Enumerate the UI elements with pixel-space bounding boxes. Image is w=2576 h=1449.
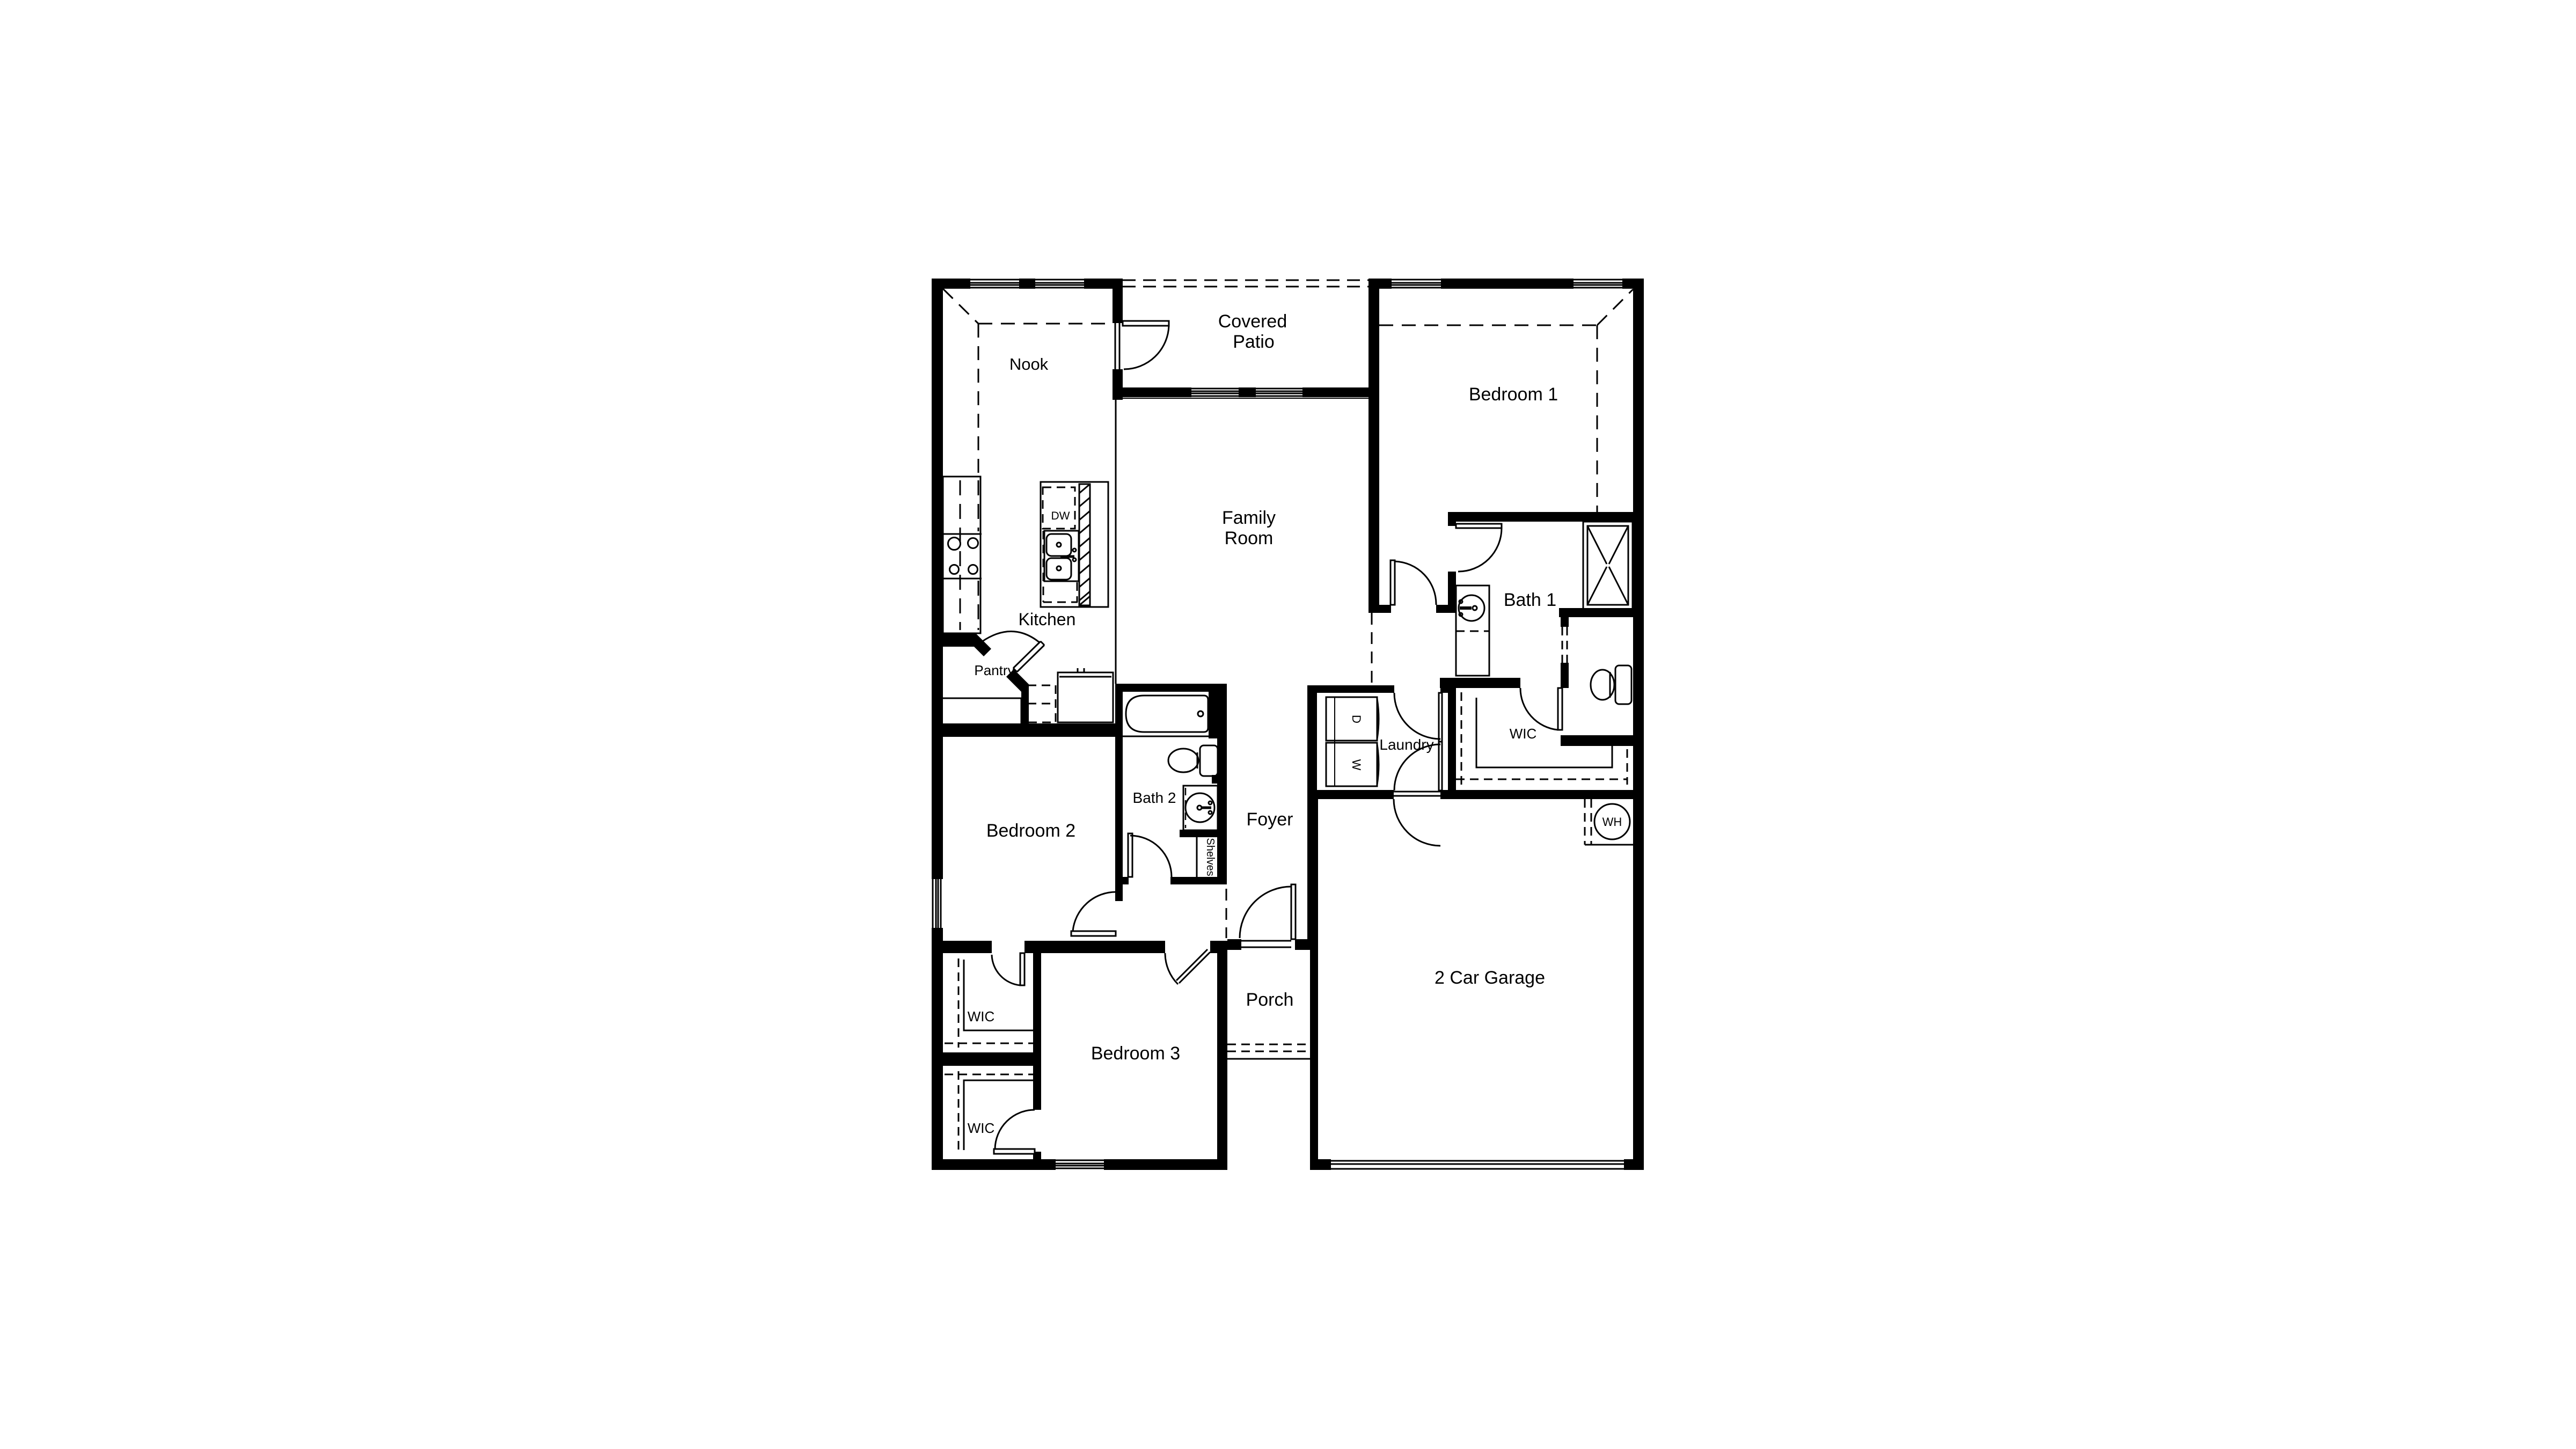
- svg-text:Foyer: Foyer: [1247, 809, 1293, 830]
- svg-text:WIC: WIC: [968, 1008, 995, 1024]
- svg-text:2 Car Garage: 2 Car Garage: [1435, 968, 1545, 988]
- svg-text:Family: Family: [1222, 508, 1276, 528]
- svg-text:Pantry: Pantry: [974, 662, 1014, 678]
- svg-text:Nook: Nook: [1009, 355, 1049, 374]
- svg-text:Covered: Covered: [1218, 311, 1287, 332]
- svg-text:WIC: WIC: [968, 1120, 995, 1136]
- svg-text:D: D: [1350, 715, 1363, 723]
- svg-text:Laundry: Laundry: [1379, 736, 1433, 753]
- svg-text:Bedroom 1: Bedroom 1: [1469, 384, 1558, 405]
- svg-text:WH: WH: [1602, 815, 1622, 829]
- svg-text:Room: Room: [1225, 528, 1274, 548]
- svg-text:Porch: Porch: [1246, 990, 1294, 1010]
- svg-text:Bath 1: Bath 1: [1504, 590, 1556, 610]
- svg-text:Bedroom 3: Bedroom 3: [1091, 1043, 1180, 1064]
- svg-text:Shelves: Shelves: [1204, 838, 1216, 876]
- svg-text:Bedroom 2: Bedroom 2: [986, 821, 1075, 841]
- svg-text:DW: DW: [1051, 510, 1070, 522]
- svg-text:W: W: [1350, 759, 1363, 771]
- svg-text:WIC: WIC: [1510, 726, 1537, 742]
- svg-text:Kitchen: Kitchen: [1019, 610, 1076, 629]
- svg-text:Patio: Patio: [1233, 332, 1275, 352]
- svg-text:Bath 2: Bath 2: [1133, 789, 1176, 806]
